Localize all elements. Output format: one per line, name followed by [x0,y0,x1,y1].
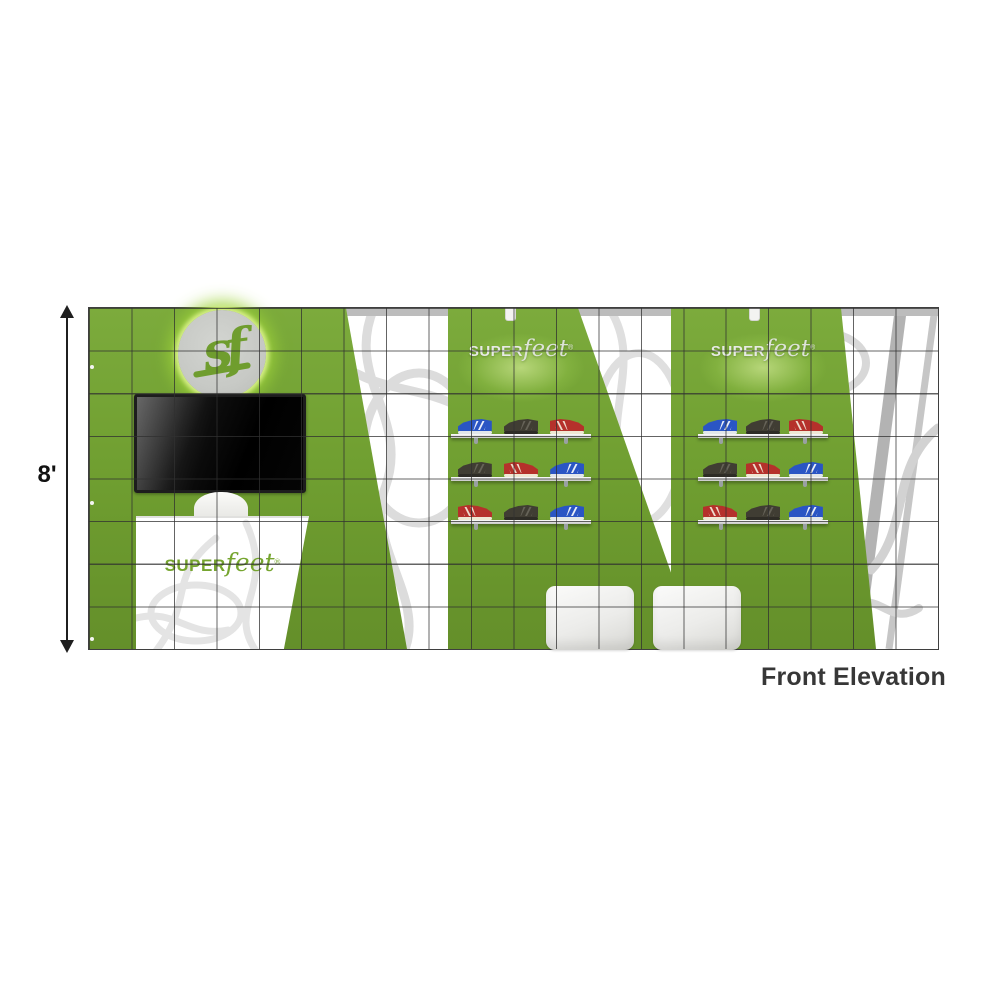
shoe-sole [746,474,780,477]
booth-front-elevation: sf SUPERfeet® [88,307,939,650]
shelf-bracket [719,481,723,487]
dimension-arrow-line [66,316,68,642]
registered-mark: ® [810,345,815,352]
shoe-black [504,505,538,520]
shelf-bracket [564,438,568,444]
shoe-sole [550,517,584,520]
display-shelf [698,434,828,438]
frame-connector-dot [90,365,94,369]
shoe-red [746,462,780,477]
shoe-sole [458,431,492,434]
shoe-black [504,419,538,434]
shelf-bracket [564,481,568,487]
shoe-sole [504,474,538,477]
shoe-red [789,419,823,434]
registered-mark: ® [275,558,281,567]
shelf-bracket [803,524,807,530]
shoe-sole [550,474,584,477]
shelf-bracket [803,438,807,444]
shoe-black [458,462,492,477]
shoe-blue [550,462,584,477]
counter-pattern-graphic [136,518,309,651]
shoe-sole [550,431,584,434]
frame-connector-dot [90,637,94,641]
tv-monitor [134,394,306,493]
display-shelf [451,520,591,524]
wordmark-script: feet [226,548,275,577]
shelf-bracket [474,438,478,444]
shelf-bracket [719,438,723,444]
drawing-caption: Front Elevation [690,663,946,692]
shoe-sole [458,474,492,477]
elevation-drawing: 8' [0,0,1000,1000]
panel-wordmark: SUPERfeet® [451,336,591,362]
shoe-sole [458,517,492,520]
reception-counter: SUPERfeet® [136,516,309,649]
shoe-red [458,505,492,520]
shelf-bracket [564,524,568,530]
wordmark-caps: SUPER [165,556,226,575]
panel-wordmark: SUPERfeet® [698,336,828,362]
shoe-sole [703,431,737,434]
wordmark-caps: SUPER [469,343,523,360]
shelf-bracket [803,481,807,487]
wordmark-caps: SUPER [711,343,765,360]
shoe-sole [789,474,823,477]
height-dimension-label: 8' [30,461,64,489]
shoe-blue [789,462,823,477]
shoe-red [703,505,737,520]
dimension-arrowhead-bottom [60,640,74,653]
display-shelf [698,477,828,481]
frame-connector-dot [90,501,94,505]
shoe-blue [550,505,584,520]
tv-screen-reflection [137,397,228,490]
shoe-sole [703,517,737,520]
shoe-sole [504,431,538,434]
sf-logo-disc: sf [178,310,266,398]
shoe-sole [703,474,737,477]
counter-wordmark: SUPERfeet® [136,548,309,577]
shelf-bracket [474,481,478,487]
shoe-blue [703,419,737,434]
shelf-bracket [474,524,478,530]
wordmark-script: feet [523,336,568,362]
shoe-red [504,462,538,477]
ottoman-seat [653,586,741,650]
ottoman-seat [546,586,634,650]
shoe-blue [789,505,823,520]
shoe-black [746,419,780,434]
display-shelf [698,520,828,524]
registered-mark: ® [568,345,573,352]
display-shelf [451,434,591,438]
shelf-bracket [719,524,723,530]
wordmark-script: feet [765,336,810,362]
shoe-blue [458,419,492,434]
display-shelf [451,477,591,481]
shoe-sole [504,517,538,520]
shoe-black [703,462,737,477]
shoe-black [746,505,780,520]
shoe-red [550,419,584,434]
shoe-sole [746,431,780,434]
shoe-sole [789,431,823,434]
shoe-sole [789,517,823,520]
shoe-sole [746,517,780,520]
